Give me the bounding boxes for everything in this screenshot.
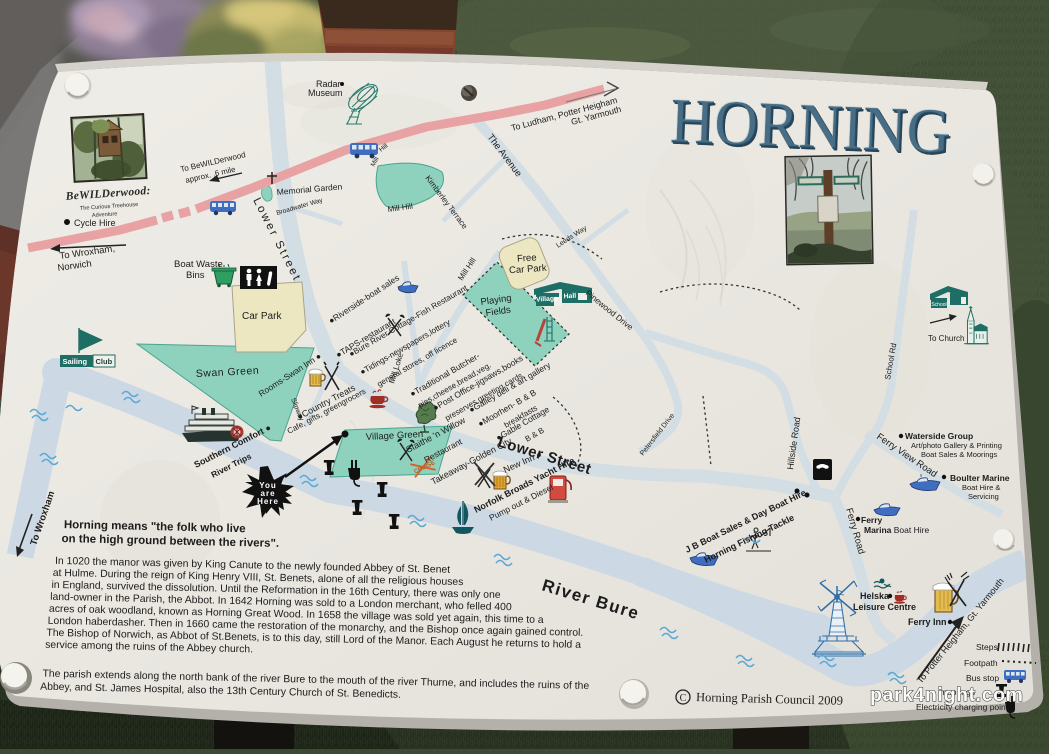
svg-text:Museum: Museum <box>308 88 343 98</box>
svg-text:Hall: Hall <box>564 293 577 301</box>
svg-text:Boat Sales & Moorings: Boat Sales & Moorings <box>921 450 998 459</box>
svg-text:C: C <box>680 693 687 704</box>
svg-text:Boulter Marine: Boulter Marine <box>950 473 1010 483</box>
svg-text:Waterside Group: Waterside Group <box>905 431 973 441</box>
svg-text:Art/photo Gallery & Printing: Art/photo Gallery & Printing <box>911 441 1002 450</box>
svg-text:Club: Club <box>96 357 113 366</box>
svg-text:HORNING: HORNING <box>669 84 952 167</box>
svg-text:Bins: Bins <box>186 270 205 281</box>
svg-text:Village: Village <box>536 295 558 303</box>
svg-text:Leisure Centre: Leisure Centre <box>853 602 916 612</box>
svg-text:School: School <box>931 302 946 308</box>
svg-text:Bus stop: Bus stop <box>966 673 999 683</box>
svg-text:Boat Hire &: Boat Hire & <box>962 483 1000 492</box>
svg-text:Ferry Inn: Ferry Inn <box>908 617 947 627</box>
svg-text:Marina Boat Hire: Marina Boat Hire <box>864 525 929 535</box>
svg-text:Car Park: Car Park <box>242 311 282 322</box>
svg-text:Steps: Steps <box>976 642 998 652</box>
svg-text:Sailing: Sailing <box>63 357 88 366</box>
svg-text:To Church: To Church <box>928 334 964 343</box>
svg-text:Boat Waste: Boat Waste <box>174 259 223 270</box>
svg-text:Helska: Helska <box>860 591 890 601</box>
svg-text:Footpath: Footpath <box>964 658 998 668</box>
svg-text:Ferry: Ferry <box>861 515 883 525</box>
svg-text:Cycle Hire: Cycle Hire <box>74 218 116 228</box>
svg-text:Here: Here <box>257 497 279 506</box>
svg-text:park4night.com: park4night.com <box>870 684 1024 706</box>
svg-text:Servicing: Servicing <box>968 492 999 501</box>
